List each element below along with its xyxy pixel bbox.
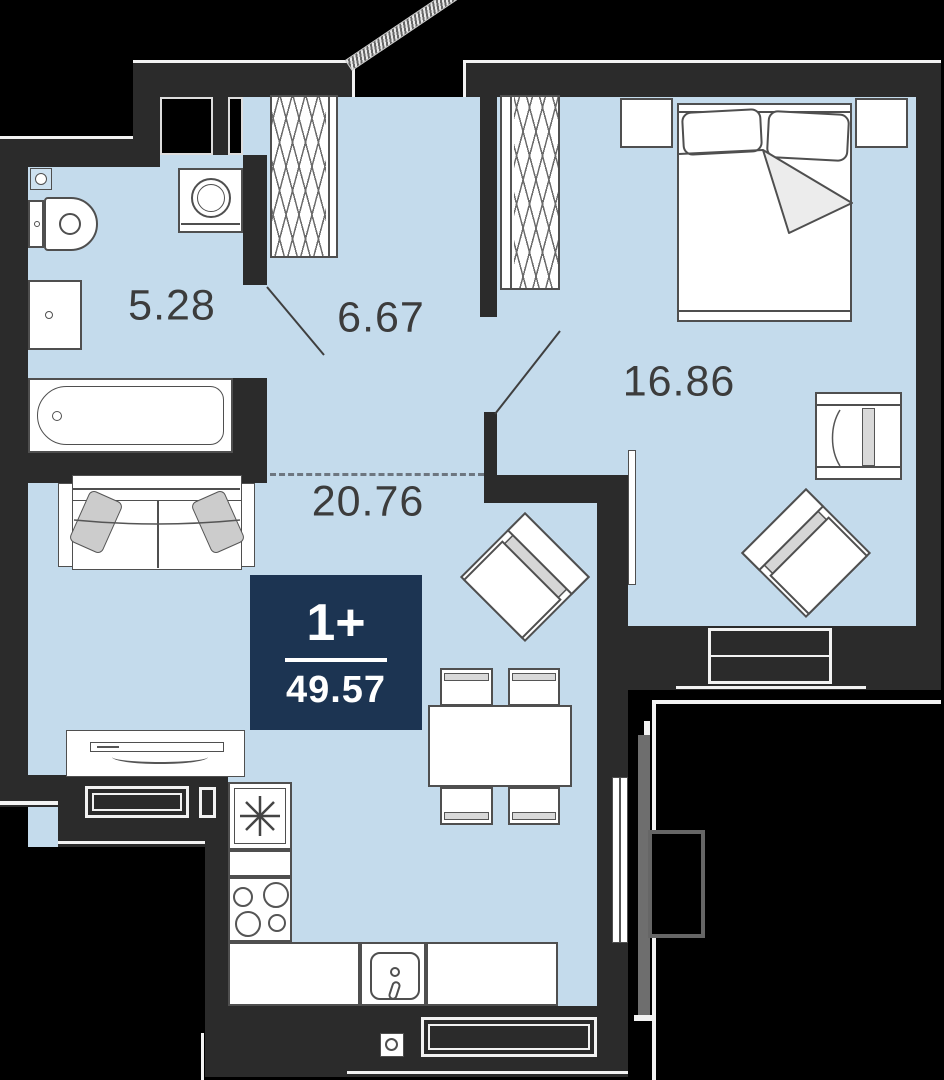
balcony-glazing-horizontal: [652, 700, 941, 704]
balcony-bar-cap: [634, 1015, 654, 1021]
wall-right-outer: [916, 63, 941, 690]
room-label-bathroom: 5.28: [128, 282, 216, 331]
window-left-large: [85, 786, 189, 818]
wall-top-left-section: [160, 63, 352, 97]
window-bedroom-mullion: [711, 655, 829, 657]
bathtub-inner: [37, 386, 224, 445]
zoning-dashed-line: [270, 473, 484, 476]
bed-footboard-line: [679, 310, 850, 312]
stove-burner-1: [233, 887, 253, 907]
wall-hall-right: [480, 97, 497, 317]
unit-area-label: 49.57: [286, 671, 386, 709]
window-living-balcony-mullion: [619, 778, 621, 942]
stove-burner-4: [268, 914, 286, 932]
unit-badge: 1+ 49.57: [250, 575, 422, 730]
kitchen-counter-left: [228, 942, 360, 1006]
nightstand-left: [620, 98, 673, 148]
stove: [228, 877, 292, 942]
dining-chair-3-back: [444, 812, 489, 820]
kitchen-counter-right: [426, 942, 558, 1006]
sofa-back-line: [73, 488, 240, 490]
pipe-box: [380, 1033, 404, 1057]
toilet-tank: [28, 200, 44, 248]
sofa-seat-divider: [157, 501, 159, 568]
entry-jamb-right: [463, 63, 466, 97]
dining-chair-4: [508, 787, 560, 825]
badge-divider: [285, 658, 387, 662]
dining-table: [428, 705, 572, 787]
pipe-hole: [385, 1038, 398, 1051]
hall-wardrobe: [270, 95, 338, 258]
kitchen-sink-unit: [360, 942, 426, 1006]
bedroom-sliding-door-leaf: [628, 450, 636, 585]
bedroom-desk-bottom-line: [817, 466, 900, 468]
bathtub: [28, 378, 233, 453]
window-kitchen: [421, 1017, 597, 1057]
wall-partition-horizontal: [484, 475, 628, 503]
tv-stand-arc: [112, 750, 208, 764]
dining-chair-2-back: [512, 673, 556, 681]
dining-chair-1: [440, 668, 493, 706]
unit-type-label: 1+: [306, 597, 365, 649]
dining-chair-4-back: [512, 812, 556, 820]
wall-sill-left: [0, 801, 58, 805]
wall-top-right-section: [463, 63, 941, 97]
bathroom-sink: [28, 280, 82, 350]
bedroom-desk-chair-pad: [862, 408, 875, 466]
bedroom-wardrobe-rail: [510, 97, 512, 288]
dining-chair-3: [440, 787, 493, 825]
wall-bath-right: [243, 155, 267, 285]
tv-screen-detail: [97, 746, 119, 748]
floor-drain-hole: [35, 173, 47, 185]
balcony-cabinet: [648, 830, 705, 938]
window-bedroom: [708, 628, 832, 684]
kitchen-counter-upper: [228, 850, 292, 877]
window-left-large-inner: [92, 793, 182, 811]
entry-door-leaf: [345, 0, 460, 71]
nightstand-right: [855, 98, 908, 148]
vent-shaft-small: [228, 97, 243, 155]
bedroom-wardrobe: [500, 95, 560, 290]
washing-machine: [178, 168, 243, 233]
sofa-armrest-right: [240, 483, 255, 567]
washing-machine-panel: [181, 223, 240, 225]
hall-wardrobe-rail: [328, 97, 330, 256]
window-left-small: [199, 787, 216, 818]
window-living-balcony: [612, 777, 628, 943]
bed: [677, 103, 852, 322]
bed-headboard-line: [679, 111, 850, 113]
bathtub-drain: [52, 411, 62, 421]
outside-southwest: [0, 847, 205, 1080]
wall-top-jog: [133, 63, 160, 167]
sofa-armrest-left: [58, 483, 73, 567]
bedroom-desk-top-line: [817, 404, 900, 406]
bedroom-wardrobe-hangers: [514, 97, 558, 288]
dining-chair-1-back: [444, 673, 489, 681]
bedroom-desk: [815, 392, 902, 480]
stove-burner-3: [235, 911, 261, 937]
room-label-living-kitchen: 20.76: [312, 478, 425, 527]
kitchen-faucet-dot: [390, 967, 400, 977]
wall-edge-southwest: [58, 841, 207, 844]
room-label-bedroom: 16.86: [623, 358, 736, 407]
fridge-inner: [234, 788, 286, 844]
wall-kitchen-left: [205, 840, 228, 1006]
wall-edge-bottom-corner: [201, 1033, 204, 1080]
washing-machine-drum-inner: [197, 184, 225, 212]
hall-wardrobe-hangers: [272, 97, 326, 256]
dining-chair-2: [508, 668, 560, 706]
window-kitchen-inner: [428, 1024, 590, 1050]
stove-burner-2: [263, 882, 289, 908]
floor-plan: 5.28 6.67 16.86 20.76 1+ 49.57: [0, 0, 944, 1080]
vent-shaft-large: [160, 97, 213, 155]
toilet-bowl-inner: [59, 213, 81, 235]
room-label-hallway: 6.67: [337, 294, 425, 343]
toilet-flush-dot: [34, 221, 40, 227]
wall-bath-corner: [233, 378, 267, 483]
window-bedroom-sill: [676, 686, 866, 689]
bathroom-sink-drain: [45, 311, 53, 319]
wall-edge-bottom: [347, 1071, 628, 1074]
wall-bedroom-door-stub: [484, 412, 497, 475]
floor-drain: [30, 168, 52, 190]
toilet-bowl: [44, 197, 98, 251]
fridge: [228, 782, 292, 850]
